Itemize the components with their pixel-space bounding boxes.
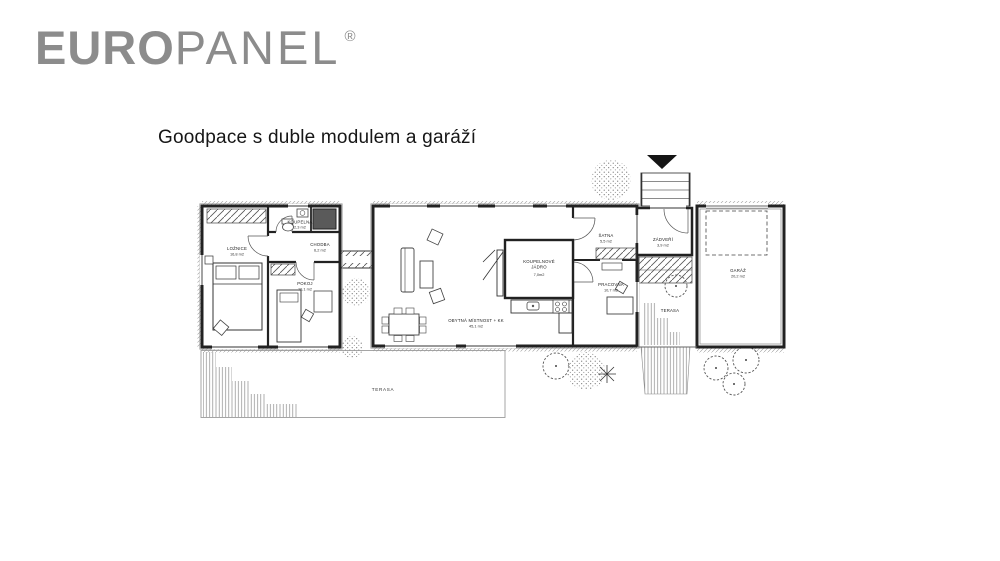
- satna-label: ŠATNA: [598, 233, 613, 238]
- koupelna-area: 2,3 m2: [294, 225, 306, 230]
- terasa-south-label: TERASA: [372, 387, 395, 392]
- connector-corridor: [339, 251, 374, 268]
- jadro-area: 7,0m2: [534, 272, 545, 277]
- entrance-steps: [641, 173, 690, 206]
- double-bed-icon: [205, 256, 262, 330]
- obytna-area: 45,1 m2: [469, 324, 483, 329]
- page: EUROPANEL® Goodpace s duble modulem a ga…: [0, 0, 1000, 561]
- washer-icon: [297, 209, 308, 217]
- loznice-label: LOŽNICE: [227, 246, 247, 251]
- desk-icon: [607, 297, 633, 314]
- pracovna-label: PRACOVNA: [598, 282, 624, 287]
- garden-path: [641, 347, 690, 394]
- desk-icon: [314, 291, 332, 312]
- shrub-icon: [598, 365, 616, 383]
- zadveri-label: ZÁDVEŘÍ: [653, 237, 674, 242]
- bush-icon: [341, 336, 363, 358]
- logo-text-bold: EURO: [35, 21, 175, 74]
- garaz-label: GARÁŽ: [730, 268, 746, 273]
- bush-icon: [567, 352, 605, 390]
- obytna-label: OBYTNÁ MÍSTNOST + KK: [448, 318, 504, 323]
- loznice-area: 16,8 m2: [230, 252, 244, 257]
- pokoj-area: 10,1 m2: [298, 287, 312, 292]
- pracovna-area: 10,7 m2: [604, 288, 618, 293]
- terasa-east-label: TERASA: [661, 308, 679, 313]
- tree-icon: [543, 353, 569, 379]
- chodba-area: 6,2 m2: [314, 248, 326, 253]
- coffee-table-icon: [420, 261, 433, 288]
- shower-icon: [313, 209, 336, 229]
- garaz-area: 20,2 m2: [731, 274, 745, 279]
- single-bed-icon: [277, 290, 301, 342]
- sideboard-icon: [602, 263, 622, 270]
- pokoj-label: POKOJ: [297, 281, 313, 286]
- wardrobe-icon: [271, 264, 295, 275]
- pergola-hatch: [639, 257, 692, 283]
- bush-icon: [342, 278, 370, 306]
- page-title: Goodpace s duble modulem a garáží: [158, 127, 476, 149]
- wardrobe-icon: [207, 209, 266, 223]
- europanel-logo: EUROPANEL®: [35, 24, 352, 71]
- terrace-deck-south: [201, 351, 505, 418]
- satna-area: 5,5 m2: [600, 239, 612, 244]
- floor-plan-figure: LOŽNICE 16,8 m2 KOUPELNA 2,3 m2 CHODBA 6…: [0, 0, 1000, 561]
- stove-icon: [553, 300, 569, 313]
- zadveri-area: 3,9 m2: [657, 243, 669, 248]
- wardrobe-icon: [596, 248, 636, 259]
- registered-trademark-icon: ®: [344, 28, 355, 45]
- tree-icon: [704, 347, 759, 395]
- jadro-label-1: KOUPELNOVÉ: [523, 259, 555, 264]
- entrance-arrow-icon: [647, 155, 677, 169]
- logo-text-light: PANEL: [175, 21, 341, 74]
- jadro-label-2: JÁDRO: [531, 265, 547, 270]
- bush-icon: [591, 160, 631, 200]
- chodba-label: CHODBA: [310, 242, 330, 247]
